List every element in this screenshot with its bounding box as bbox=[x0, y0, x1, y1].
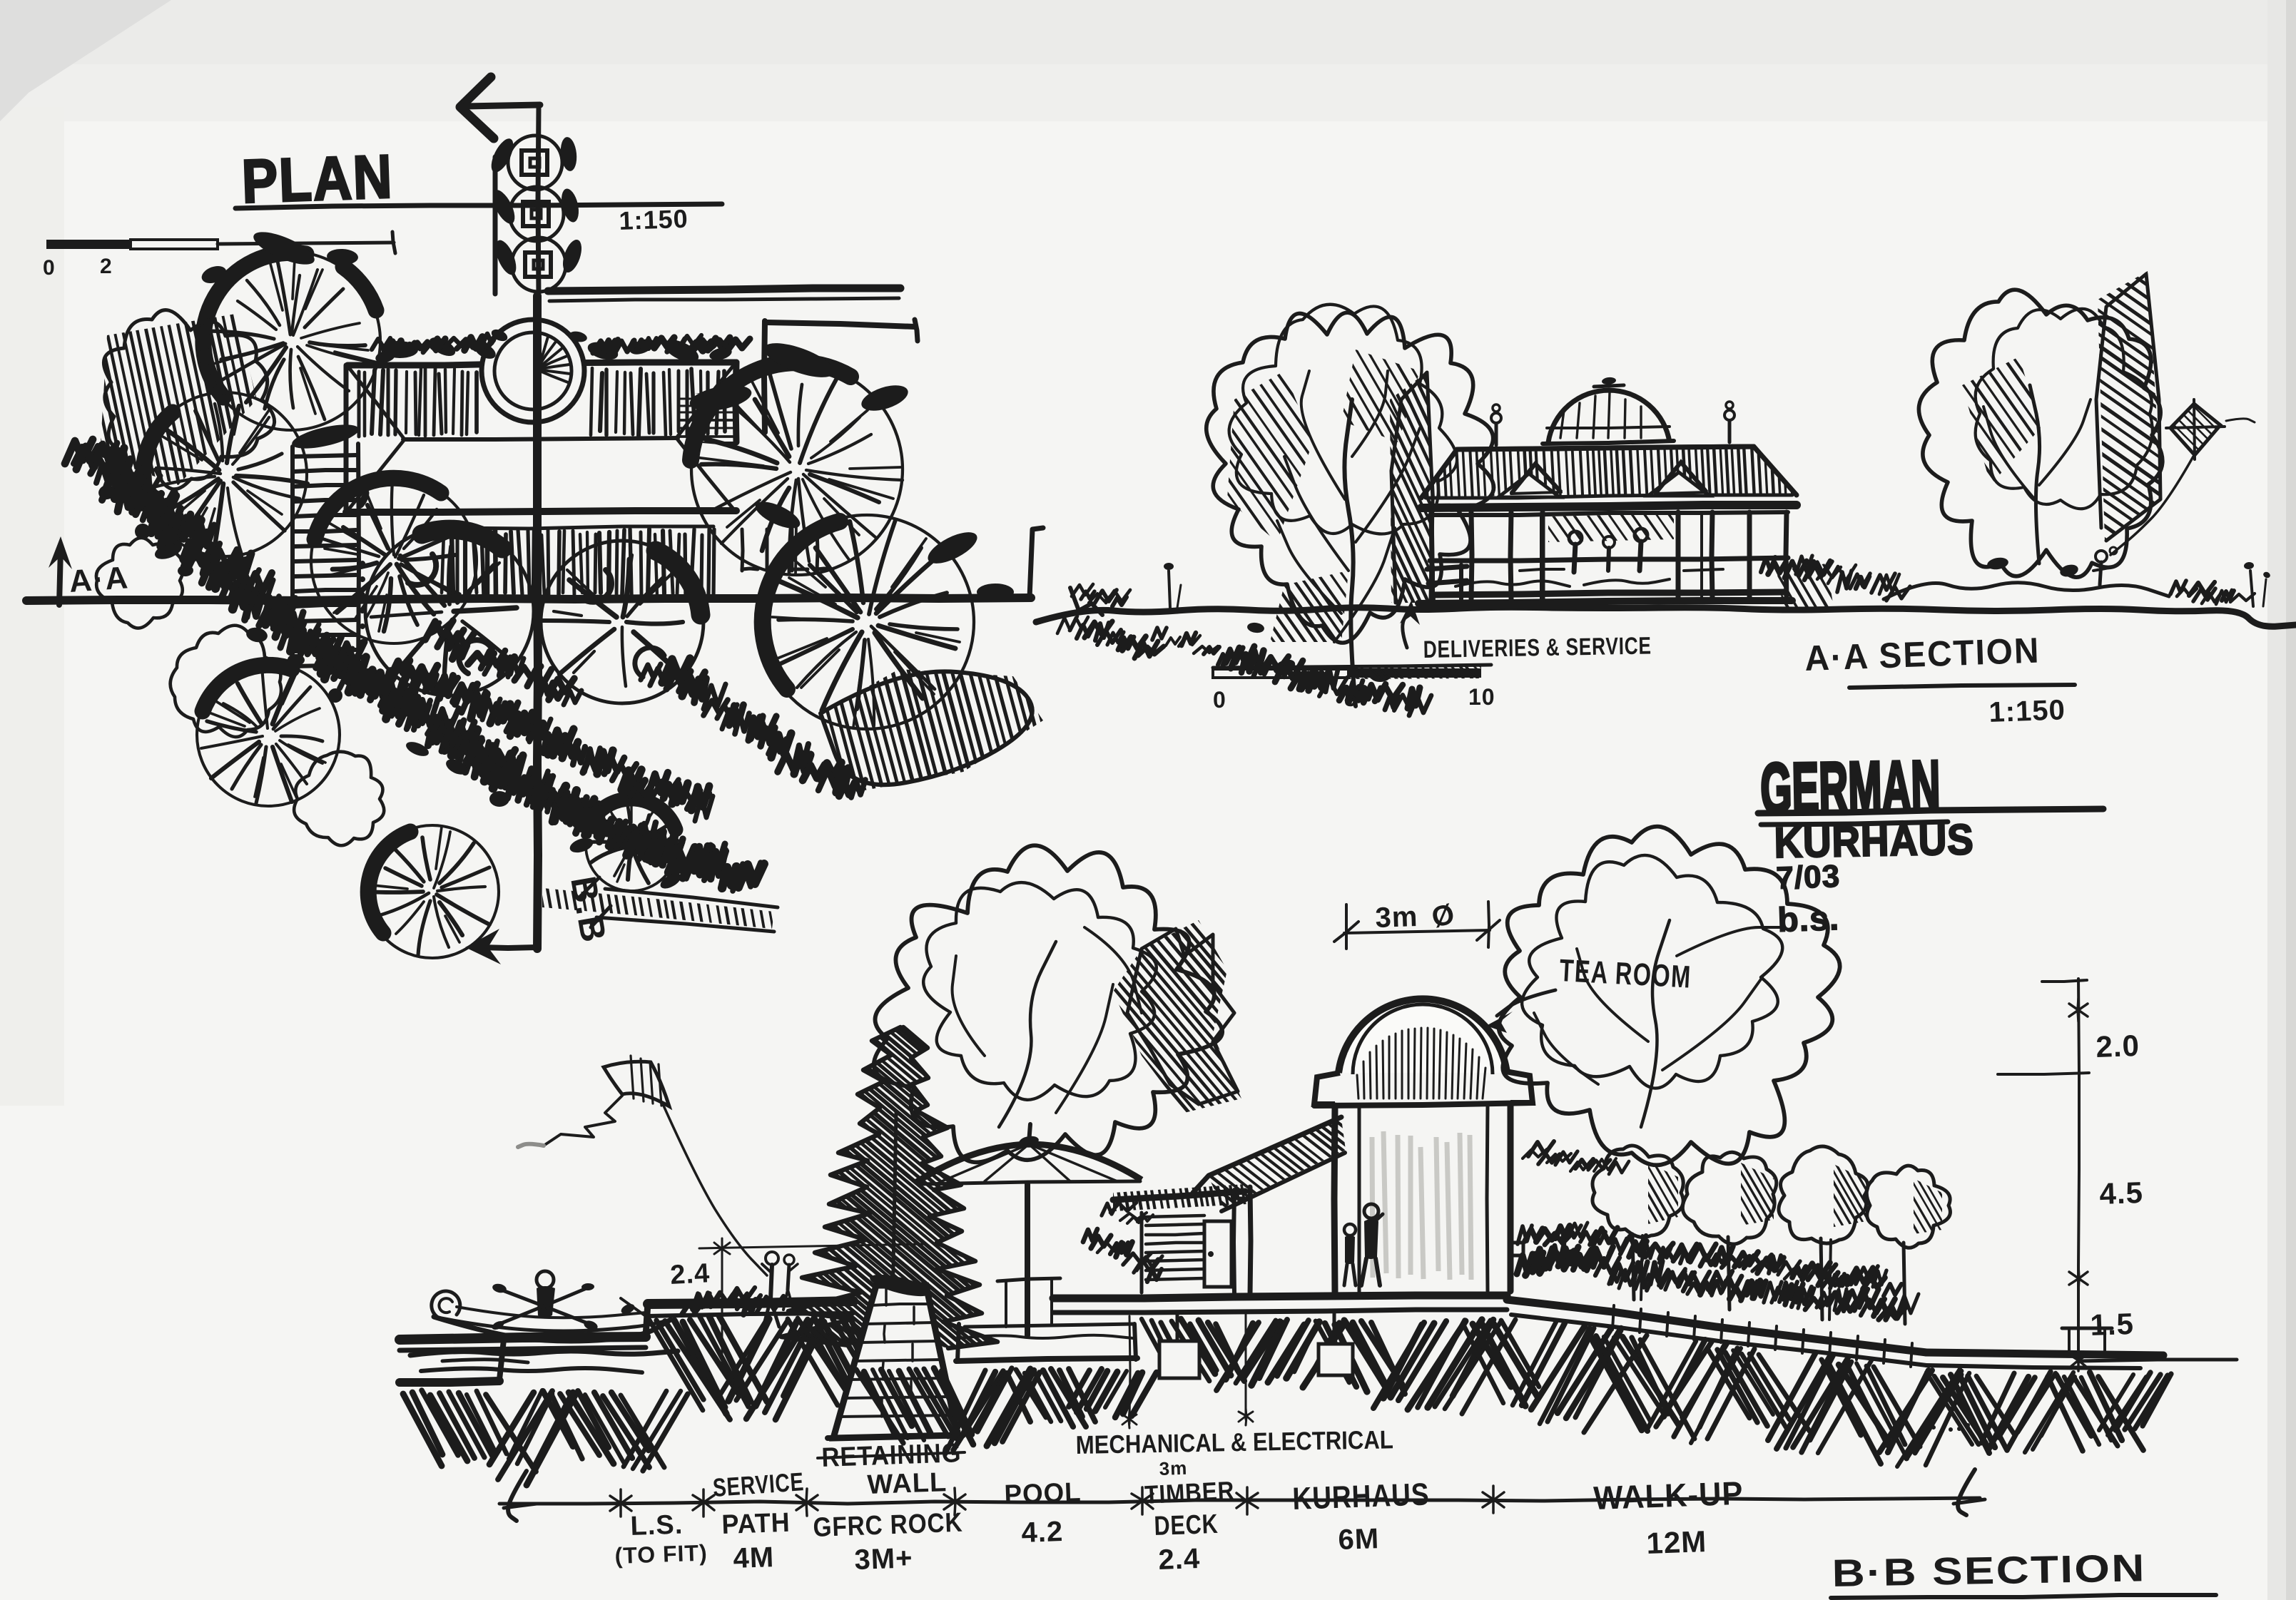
svg-text:12M: 12M bbox=[1646, 1524, 1707, 1560]
svg-text:KURHAUS: KURHAUS bbox=[1774, 815, 1974, 867]
svg-text:4.5: 4.5 bbox=[2099, 1176, 2144, 1211]
svg-text:1.5: 1.5 bbox=[2090, 1307, 2135, 1342]
svg-text:2.0: 2.0 bbox=[2096, 1029, 2140, 1064]
svg-text:2.4: 2.4 bbox=[669, 1258, 711, 1290]
svg-text:TIMBER: TIMBER bbox=[1144, 1475, 1235, 1509]
svg-text:2.4: 2.4 bbox=[1158, 1543, 1201, 1576]
svg-text:L.S.: L.S. bbox=[630, 1509, 684, 1542]
svg-text:3M+: 3M+ bbox=[854, 1542, 913, 1576]
svg-text:1:150: 1:150 bbox=[619, 204, 689, 235]
svg-text:4.2: 4.2 bbox=[1021, 1516, 1064, 1549]
svg-text:A·A: A·A bbox=[68, 560, 130, 599]
svg-text:3m: 3m bbox=[1375, 901, 1418, 934]
svg-text:PATH: PATH bbox=[721, 1508, 791, 1540]
svg-text:5: 5 bbox=[1344, 686, 1358, 711]
svg-text:DECK: DECK bbox=[1154, 1509, 1219, 1542]
svg-text:MECHANICAL & ELECTRICAL: MECHANICAL & ELECTRICAL bbox=[1075, 1425, 1393, 1459]
svg-text:1:150: 1:150 bbox=[1988, 694, 2066, 728]
svg-text:2: 2 bbox=[100, 255, 113, 278]
svg-text:WALK-UP: WALK-UP bbox=[1593, 1474, 1744, 1517]
svg-text:0: 0 bbox=[1213, 687, 1226, 713]
svg-text:0: 0 bbox=[43, 256, 56, 280]
svg-text:TEA ROOM: TEA ROOM bbox=[1558, 953, 1692, 995]
svg-text:GFRC ROCK: GFRC ROCK bbox=[813, 1508, 963, 1543]
svg-text:B·B SECTION: B·B SECTION bbox=[1832, 1547, 2146, 1595]
svg-text:3m: 3m bbox=[1159, 1457, 1188, 1479]
svg-text:(TO FIT): (TO FIT) bbox=[614, 1539, 708, 1569]
svg-text:10: 10 bbox=[1468, 684, 1495, 710]
svg-text:6M: 6M bbox=[1338, 1523, 1380, 1556]
svg-text:4M: 4M bbox=[733, 1542, 775, 1574]
svg-text:WALL: WALL bbox=[867, 1467, 948, 1500]
svg-text:DELIVERIES & SERVICE: DELIVERIES & SERVICE bbox=[1423, 632, 1652, 663]
svg-text:POOL: POOL bbox=[1004, 1477, 1082, 1510]
svg-text:A·A SECTION: A·A SECTION bbox=[1804, 631, 2041, 678]
svg-text:KURHAUS: KURHAUS bbox=[1292, 1477, 1431, 1517]
